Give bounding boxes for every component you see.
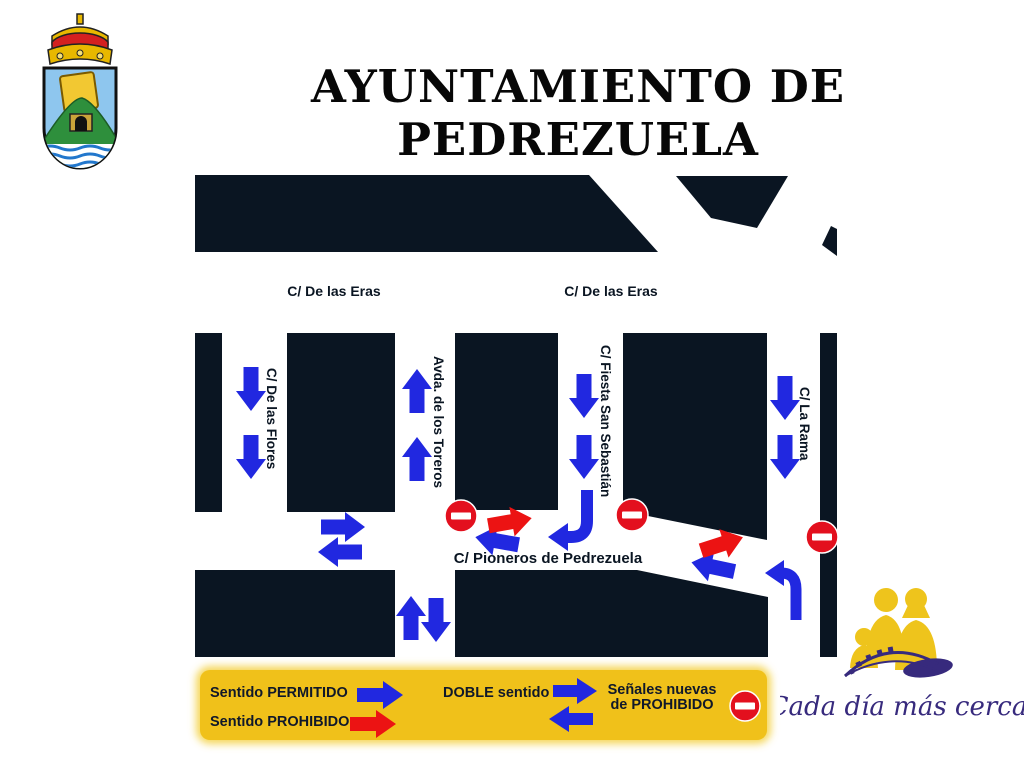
building-block-south-west — [195, 570, 395, 657]
building-block-top-right — [676, 176, 788, 228]
arrow-permitted-down-rama-1 — [770, 376, 800, 420]
street-label-eras-left: C/ De las Eras — [287, 283, 381, 299]
street-label-toreros: Avda. de los Toreros — [431, 356, 446, 488]
arrow-permitted-down-flores-2 — [236, 435, 266, 479]
street-label-fiesta: C/ Fiesta San Sebastián — [598, 345, 613, 497]
building-block-west — [195, 333, 222, 512]
building-block-south-east — [455, 570, 768, 657]
legend-prohibited-arrow-icon — [348, 708, 398, 740]
brand-slogan: Cada día más cerca — [780, 692, 1024, 722]
arrow-permitted-down-fiesta-1 — [569, 374, 599, 418]
arrow-permitted-up-toreros-2 — [402, 437, 432, 481]
arrow-double-pioneros-right — [321, 512, 365, 542]
street-label-flores: C/ De las Flores — [264, 368, 279, 469]
arrow-double-pioneros-left — [318, 537, 362, 567]
building-block-top-far-right — [822, 226, 837, 256]
brand-logo: Cada día más cerca — [780, 570, 1024, 740]
street-label-rama: C/ La Rama — [797, 387, 812, 461]
legend-prohibited-label: Sentido PROHIBIDO — [210, 714, 349, 730]
no-entry-sign-rama — [806, 521, 838, 553]
building-block-toreros-fiesta — [455, 333, 558, 510]
legend-box: Sentido PERMITIDO Sentido PROHIBIDO DOBL… — [200, 670, 767, 740]
legend-no-entry-icon — [728, 689, 762, 723]
arrow-permitted-down-fiesta-2 — [569, 435, 599, 479]
legend-permitted-arrow-icon — [355, 679, 405, 711]
arrow-permitted-up-toreros-1 — [402, 369, 432, 413]
legend-double-label: DOBLE sentido — [443, 685, 549, 701]
no-entry-sign-fiesta — [616, 499, 648, 531]
arrow-double-toreros-south-up — [396, 596, 426, 640]
legend-double-arrows-icon — [545, 675, 601, 735]
page: AYUNTAMIENTO DE PEDREZUELA C/ De las Era… — [0, 0, 1024, 768]
legend-new-signs-line2: de PROHIBIDO — [602, 698, 722, 713]
legend-new-signs-line1: Señales nuevas — [602, 683, 722, 698]
legend-permitted-label: Sentido PERMITIDO — [210, 685, 348, 701]
no-entry-sign-toreros — [445, 500, 477, 532]
arrow-permitted-down-rama-2 — [770, 435, 800, 479]
street-label-pioneros: C/ Pioneros de Pedrezuela — [454, 550, 643, 567]
building-block-flores-toreros — [287, 333, 395, 512]
arrow-permitted-down-flores-1 — [236, 367, 266, 411]
building-block-top — [195, 175, 658, 252]
street-label-eras-right: C/ De las Eras — [564, 283, 658, 299]
arrow-double-toreros-south-down — [421, 598, 451, 642]
legend-new-signs-label: Señales nuevas de PROHIBIDO — [602, 683, 722, 713]
